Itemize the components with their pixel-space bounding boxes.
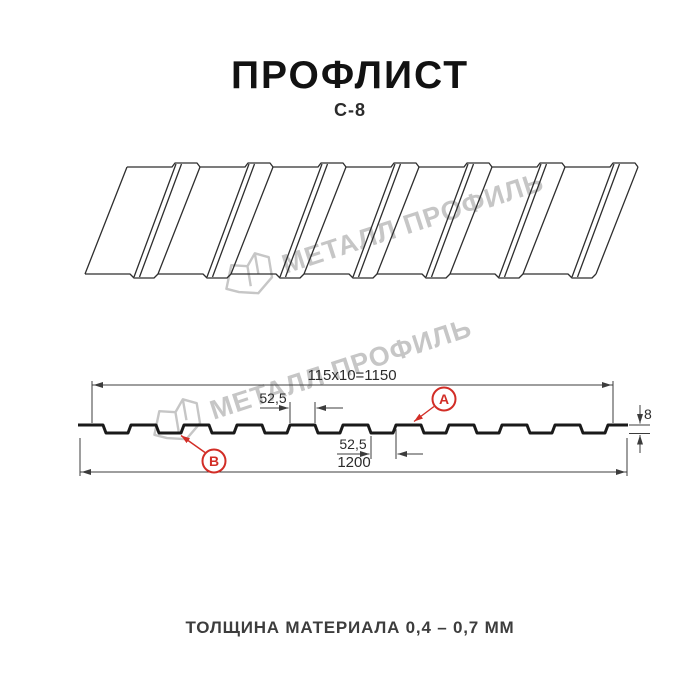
bottom-silhouette (85, 274, 596, 278)
dim-rib-bottom-label: 52,5 (339, 436, 366, 452)
diagram-page: ПРОФЛИСТ С-8 МЕТАЛЛ ПРОФИЛЬ МЕТАЛЛ ПРОФИ… (0, 0, 700, 700)
dim-overall-width-label: 1200 (337, 454, 370, 471)
cross-section-drawing: 115x10=1150 52,5 52,5 8 (60, 345, 680, 495)
page-title: ПРОФЛИСТ (0, 54, 700, 98)
profile-model-label: С-8 (0, 100, 700, 121)
dim-rib-top-label: 52,5 (259, 390, 286, 406)
dim-module-width-label: 115x10=1150 (307, 367, 396, 384)
top-silhouette (127, 163, 638, 167)
marker-a: А (414, 388, 456, 422)
dim-profile-height-label: 8 (644, 406, 652, 422)
marker-b: В (181, 436, 226, 473)
profile-3d-drawing (70, 150, 650, 290)
dim-module-width (92, 381, 613, 423)
panel-edges (85, 167, 638, 274)
profile-section-line (78, 425, 628, 433)
thickness-note: ТОЛЩИНА МАТЕРИАЛА 0,4 – 0,7 ММ (0, 618, 700, 638)
marker-b-label: В (209, 453, 219, 469)
marker-a-label: А (439, 391, 449, 407)
rib-double-lines (134, 164, 620, 277)
